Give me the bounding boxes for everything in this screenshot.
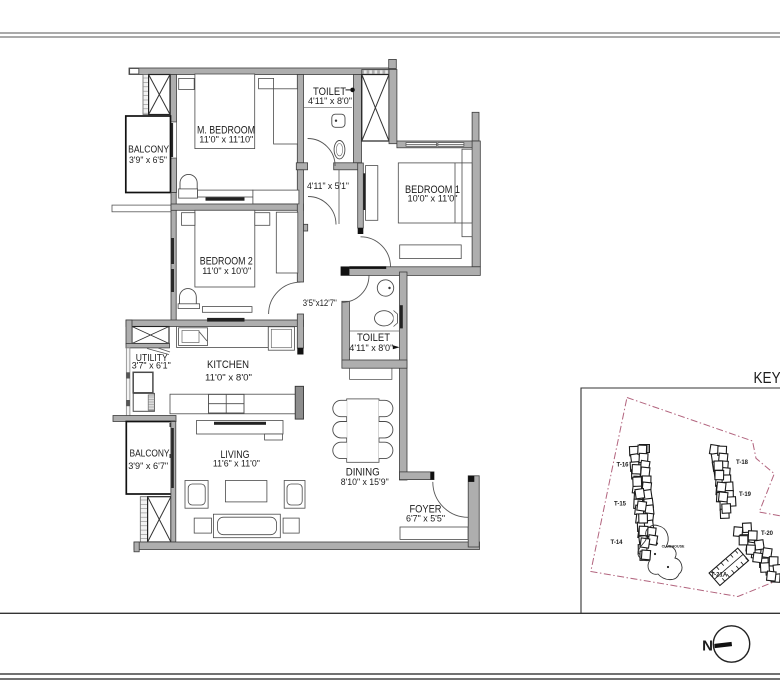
svg-text:T-18: T-18: [736, 460, 749, 466]
svg-text:KITCHEN: KITCHEN: [207, 359, 249, 371]
svg-text:4'11" x 8'0": 4'11" x 8'0": [349, 343, 393, 354]
svg-text:T-14: T-14: [610, 540, 623, 546]
svg-text:11'0" x 8'0": 11'0" x 8'0": [205, 372, 252, 383]
svg-text:3'5"x12'7": 3'5"x12'7": [303, 298, 337, 309]
svg-text:BALCONY: BALCONY: [130, 448, 170, 459]
svg-text:11'0" x 10'0": 11'0" x 10'0": [202, 266, 251, 277]
svg-text:3'9" x 6'7": 3'9" x 6'7": [128, 461, 168, 472]
svg-text:3'9" x 6'5": 3'9" x 6'5": [129, 155, 167, 166]
svg-text:T-21A: T-21A: [711, 573, 728, 579]
svg-text:4'11" x 8'0": 4'11" x 8'0": [308, 96, 352, 107]
svg-text:11'0" x 11'10": 11'0" x 11'10": [199, 134, 253, 145]
svg-text:8'10" x 15'9": 8'10" x 15'9": [341, 477, 389, 488]
svg-text:T-15: T-15: [614, 502, 627, 508]
svg-text:4'11" x 5'1": 4'11" x 5'1": [307, 181, 349, 192]
svg-text:6'7" x 5'5": 6'7" x 5'5": [406, 513, 445, 524]
svg-text:N: N: [702, 638, 713, 655]
svg-text:10'0" x 11'0": 10'0" x 11'0": [408, 194, 458, 205]
svg-text:T-16: T-16: [616, 463, 629, 469]
svg-text:KEY PLAN: KEY PLAN: [754, 370, 780, 387]
svg-text:TOILET: TOILET: [357, 332, 390, 344]
svg-text:T-19: T-19: [739, 492, 752, 498]
svg-text:T-20: T-20: [761, 531, 774, 537]
svg-text:BALCONY: BALCONY: [128, 145, 169, 156]
svg-text:11'6" x 11'0": 11'6" x 11'0": [213, 459, 260, 470]
svg-text:CLUBHOUSE: CLUBHOUSE: [662, 545, 685, 549]
svg-text:3'7" x 6'1": 3'7" x 6'1": [132, 361, 171, 372]
